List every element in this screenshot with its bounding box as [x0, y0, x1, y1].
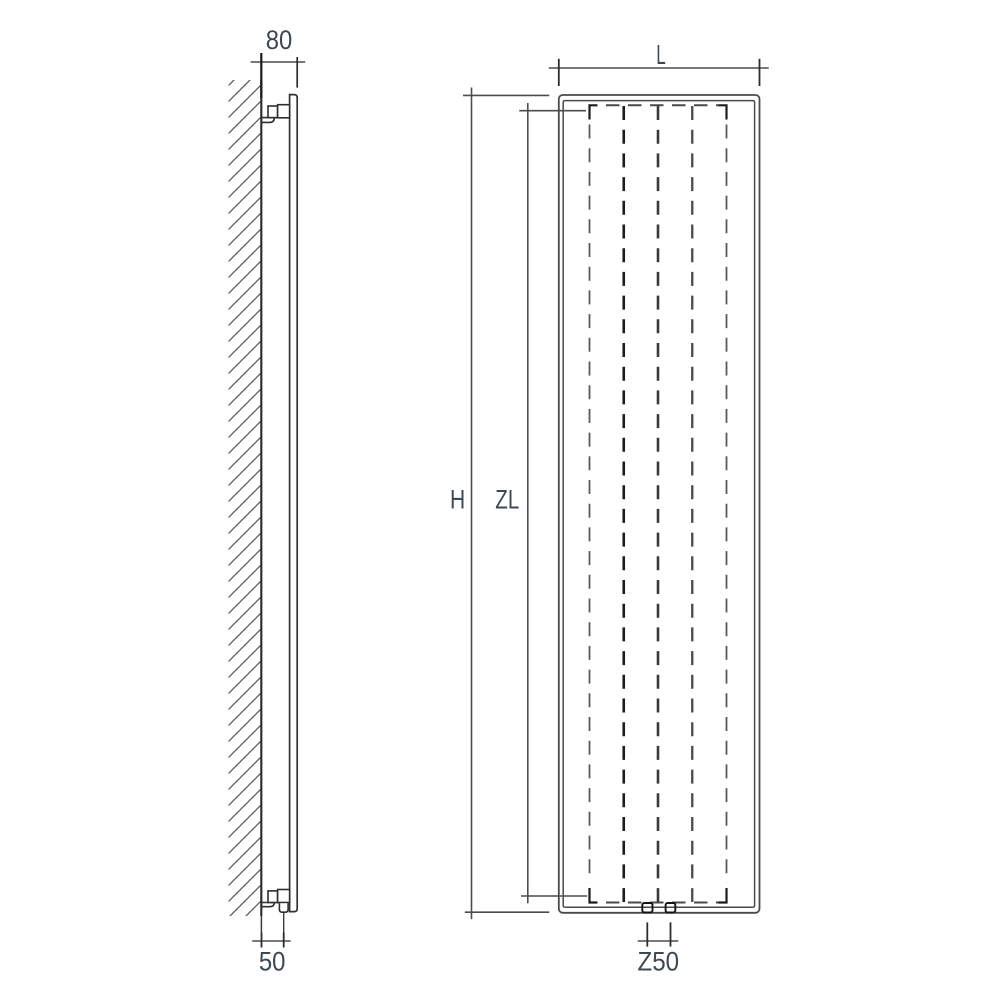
svg-text:ZL: ZL: [495, 484, 519, 514]
svg-text:50: 50: [259, 947, 286, 977]
svg-text:H: H: [450, 484, 465, 514]
svg-text:Z50: Z50: [638, 946, 680, 976]
svg-text:L: L: [656, 39, 666, 70]
svg-text:80: 80: [266, 25, 293, 55]
